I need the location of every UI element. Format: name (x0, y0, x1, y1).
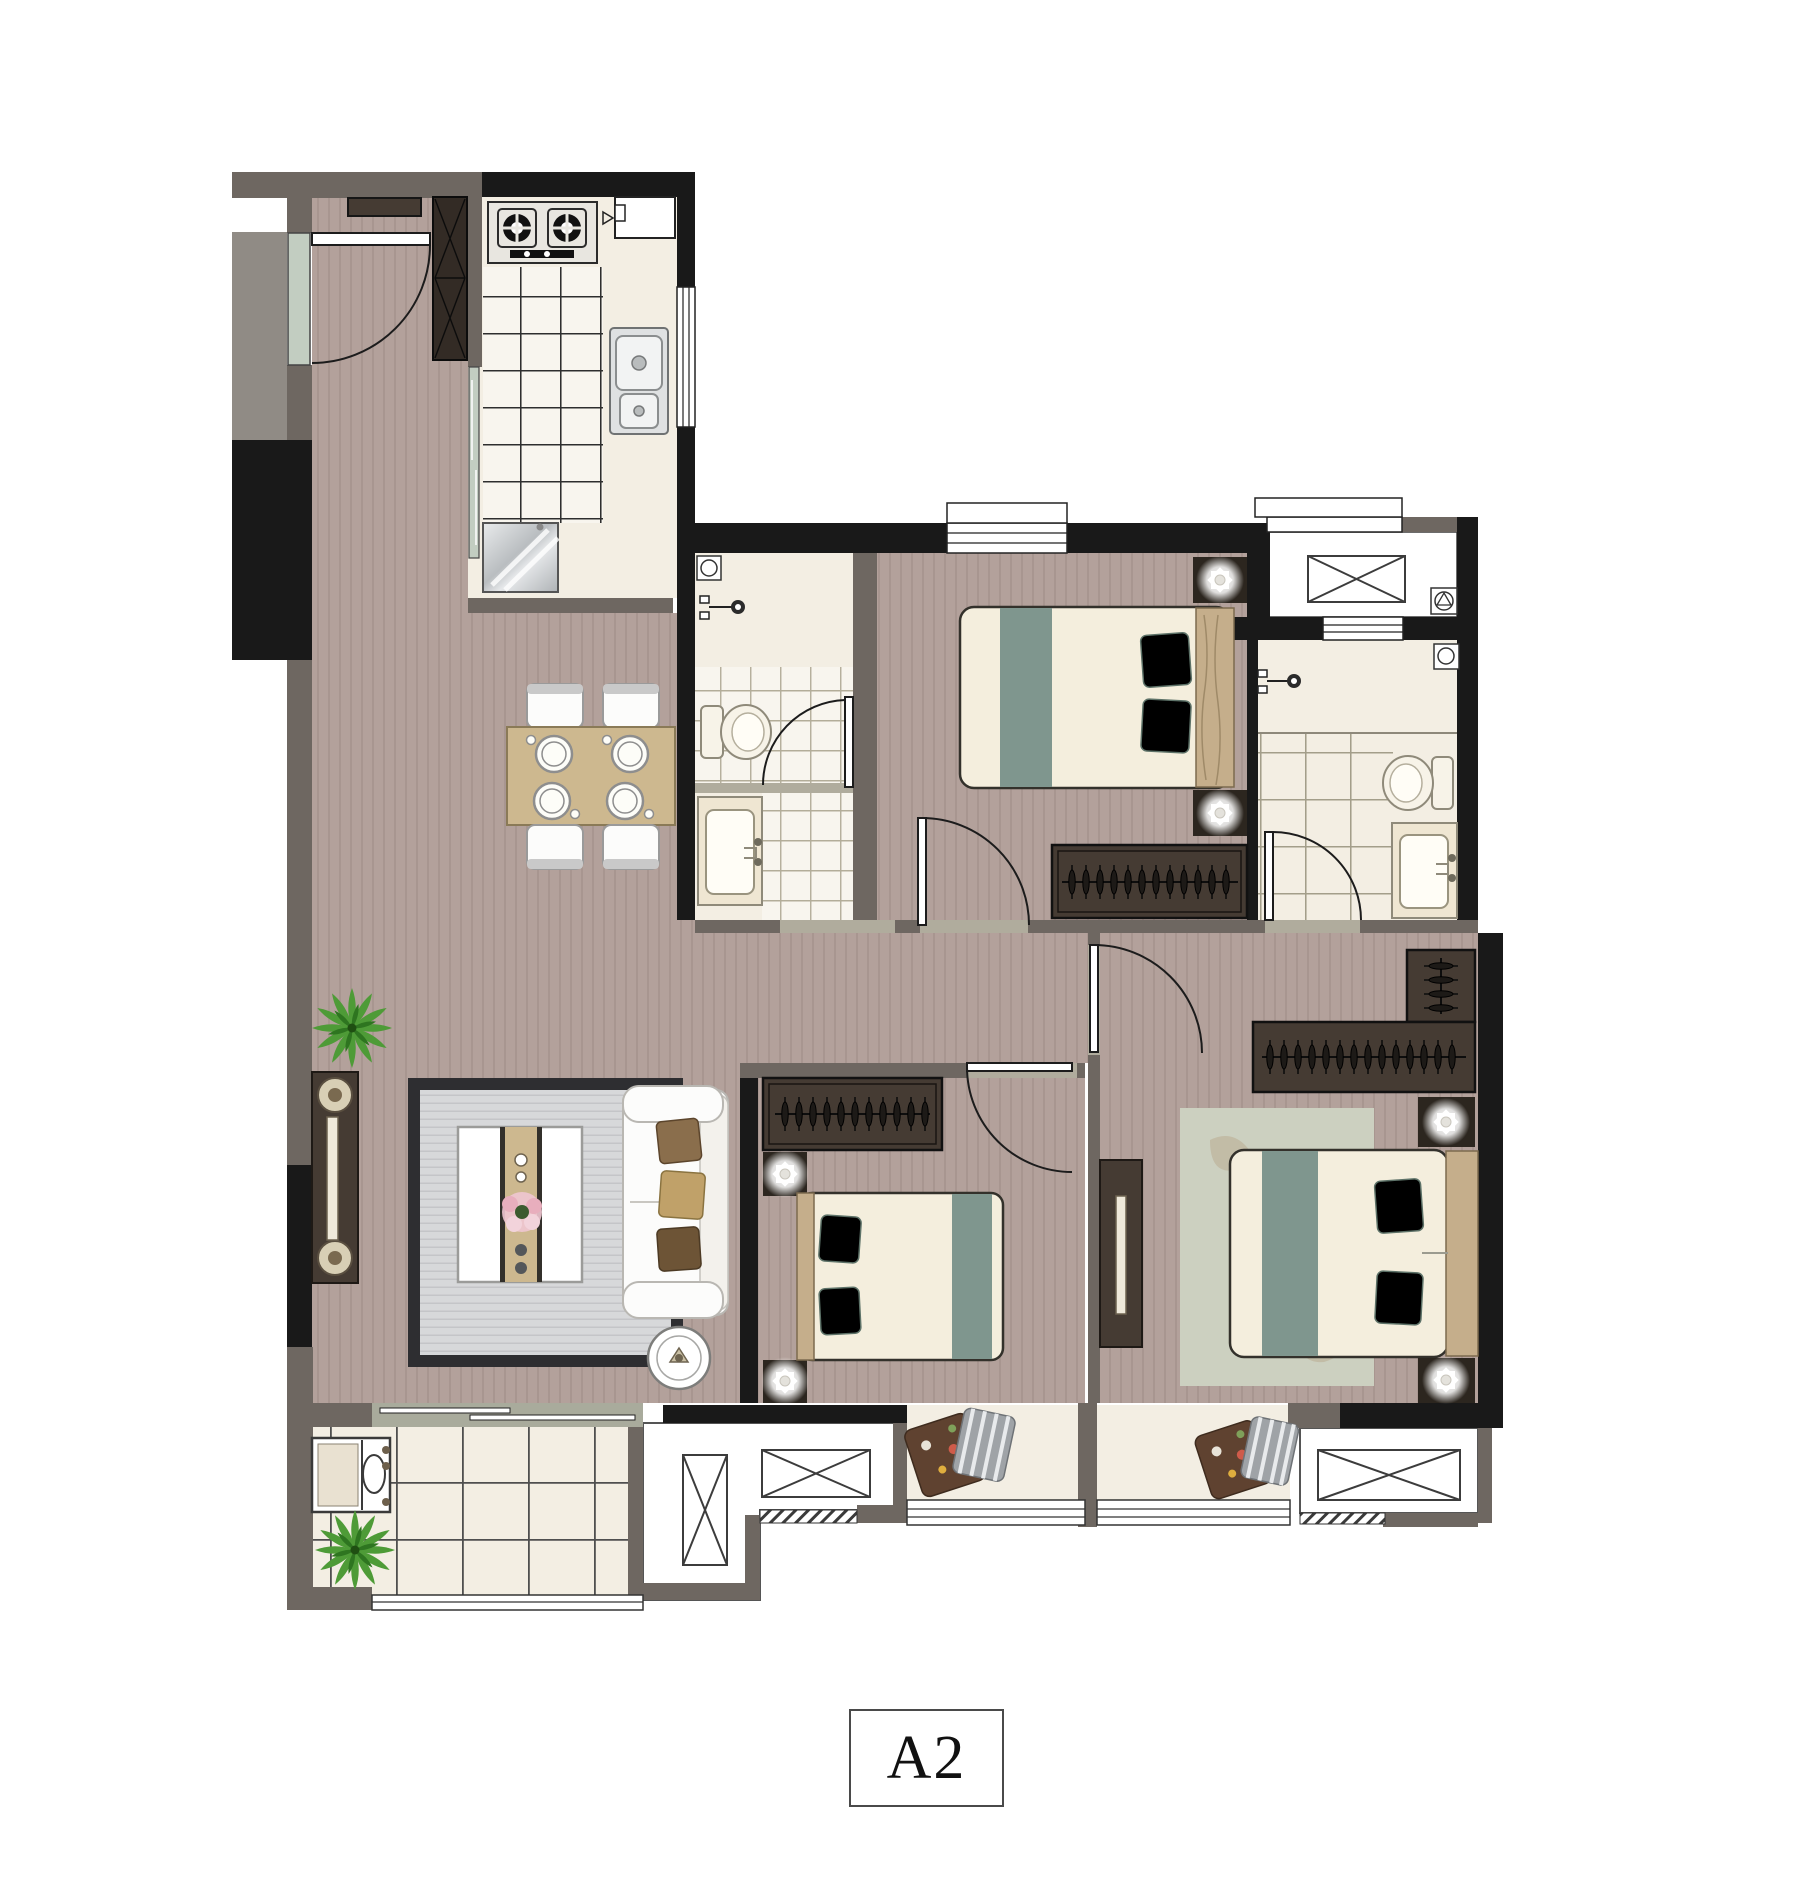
flowers-icon (502, 1192, 542, 1232)
tv-console-living (312, 1072, 358, 1283)
tv-icon (1116, 1196, 1126, 1314)
sofa-pillow (656, 1118, 702, 1164)
kitchen-window (677, 287, 695, 427)
bed-runner (952, 1194, 992, 1359)
bed-top (960, 607, 1234, 788)
headboard (1446, 1151, 1478, 1356)
kitchen-sliding-door (469, 367, 479, 558)
nightstand-lamp (1418, 1356, 1475, 1404)
pillow (818, 1215, 861, 1264)
basin-icon (698, 797, 762, 905)
headboard (797, 1193, 814, 1360)
stove-icon (488, 202, 597, 263)
living-balcony-rail (372, 1595, 643, 1610)
washing-machine-icon (1431, 588, 1457, 614)
wardrobe-top-bedroom (1052, 845, 1247, 918)
wardrobe-bottom-bedroom (763, 1078, 942, 1150)
sofa (623, 1086, 728, 1318)
tv-icon (327, 1117, 338, 1240)
unit-label: A2 (849, 1709, 1004, 1807)
floor-plan-drawing (0, 0, 1800, 1882)
entry-door-glass (288, 233, 310, 365)
toilet-icon (701, 705, 771, 759)
dining-chair (603, 684, 659, 728)
coffee-table (458, 1127, 582, 1282)
kitchen-counter (483, 267, 603, 523)
ac-unit-icon (762, 1450, 870, 1497)
floor-drain-icon (697, 556, 721, 580)
sofa-pillow (657, 1227, 702, 1272)
pillow (819, 1287, 861, 1335)
ac-unit-icon (1308, 556, 1405, 602)
hatch-strip (760, 1510, 857, 1523)
entry-tall-cabinet (433, 197, 467, 360)
floor-drain-icon (1434, 644, 1459, 669)
bed-runner (1000, 608, 1052, 787)
kitchen-sink-icon (610, 328, 668, 434)
nightstand-lamp (1193, 789, 1247, 837)
entry-shoe-cabinet (348, 198, 421, 216)
master-balcony-rail (1097, 1500, 1290, 1525)
bed-bottom (797, 1193, 1003, 1360)
pillow (1374, 1178, 1424, 1233)
pillow (1140, 632, 1192, 687)
pillow (1375, 1271, 1424, 1325)
nightstand-lamp (761, 1357, 809, 1405)
ac-unit-icon (1318, 1450, 1460, 1500)
hatch-strip-2 (1300, 1513, 1385, 1524)
nightstand-lamp (1193, 556, 1247, 604)
floor-plan-canvas: A2 (0, 0, 1800, 1882)
bed-runner (1262, 1151, 1318, 1356)
headboard (1196, 608, 1234, 787)
pillow (1141, 699, 1192, 753)
bedroom-top-window (947, 503, 1067, 553)
tv-console-master (1100, 1160, 1142, 1347)
dining-chair (527, 684, 583, 728)
nightstand-lamp (761, 1150, 809, 1198)
dining-chair (603, 825, 659, 869)
bed-master (1230, 1150, 1478, 1357)
sofa-pillow (658, 1171, 705, 1220)
ac-unit-icon (683, 1455, 727, 1565)
nightstand-lamp (1418, 1097, 1475, 1147)
basin-icon (1392, 823, 1457, 918)
fridge-icon (483, 523, 558, 592)
side-table (648, 1327, 710, 1389)
living-balcony-door-sill (372, 1403, 643, 1427)
washing-machine-icon (312, 1438, 390, 1512)
bedroom-balcony-rail (907, 1500, 1085, 1525)
dining-chair (527, 825, 583, 869)
toilet-icon (1383, 756, 1453, 810)
